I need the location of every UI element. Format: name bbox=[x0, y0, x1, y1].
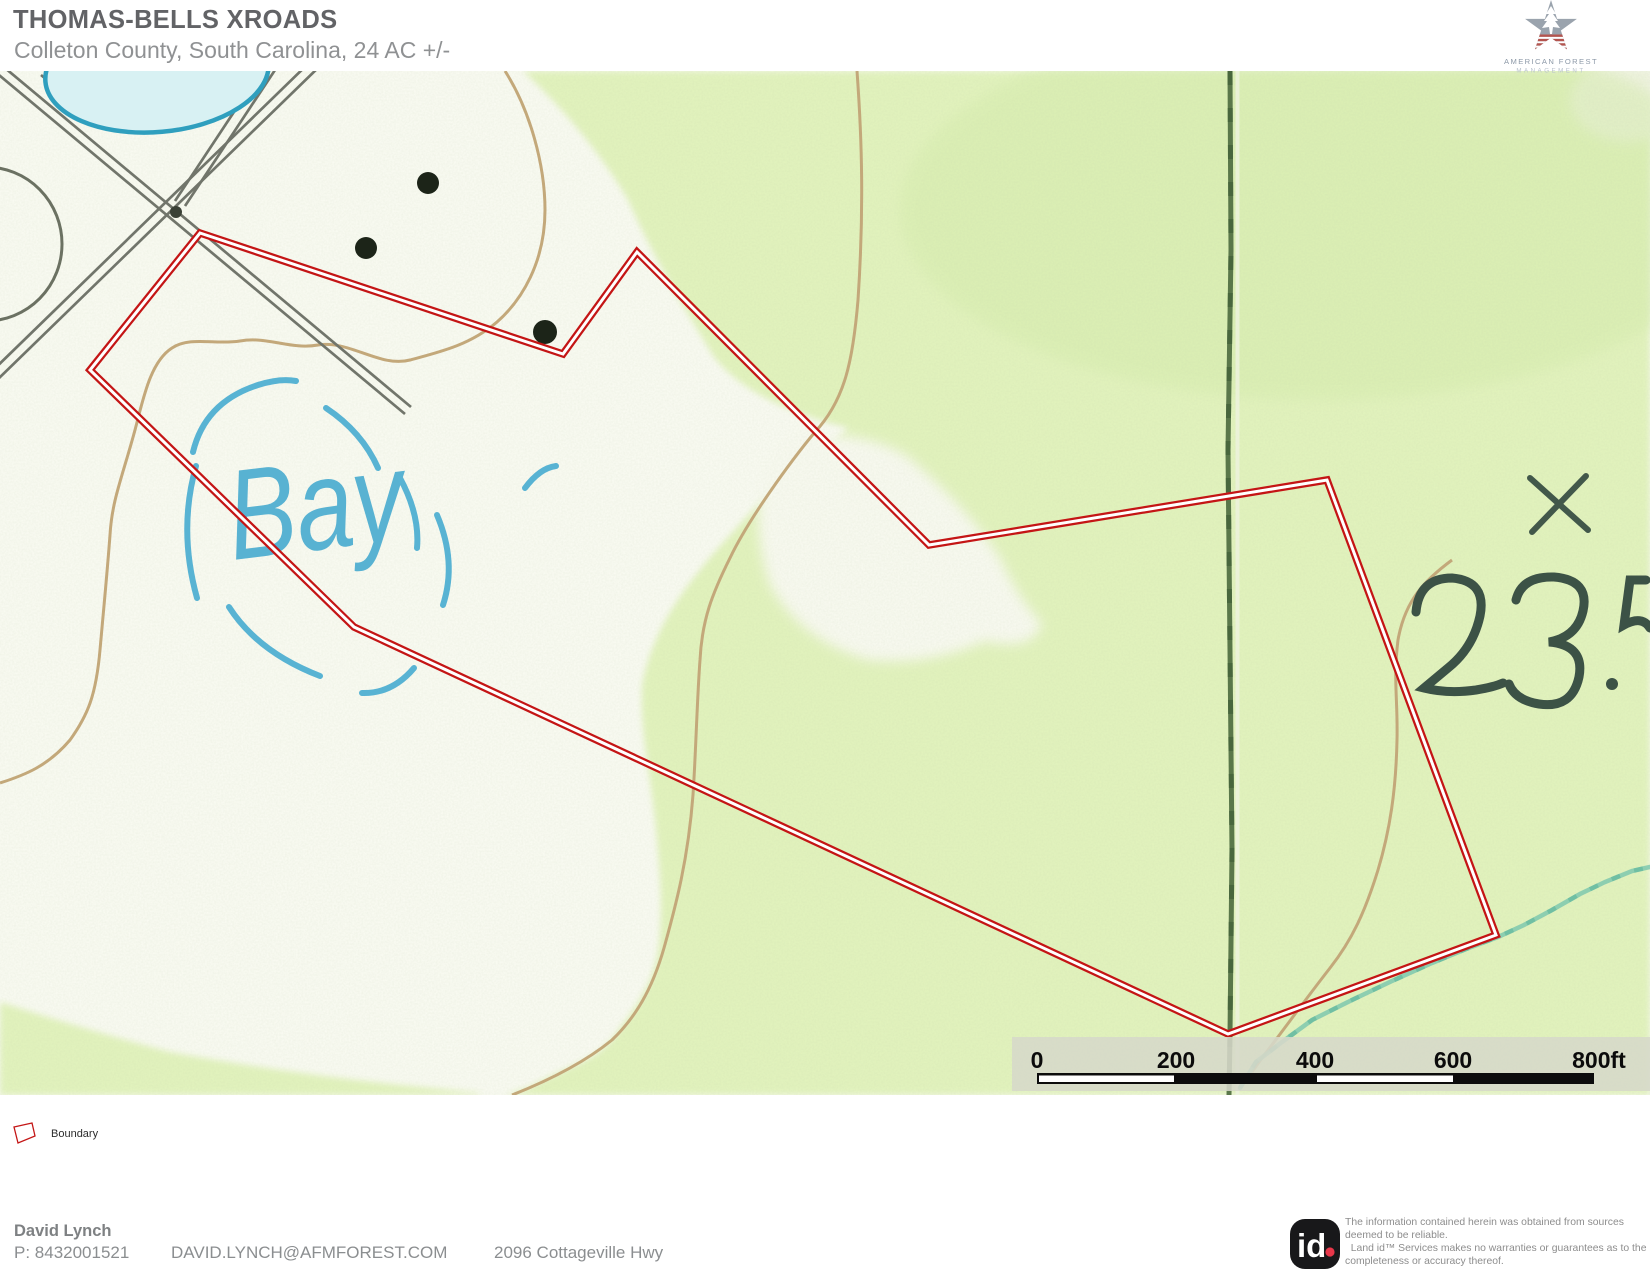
svg-text:800ft: 800ft bbox=[1572, 1047, 1626, 1073]
svg-text:deemed to be reliable.: deemed to be reliable. bbox=[1345, 1230, 1448, 1241]
svg-text:Colleton County, South Carolin: Colleton County, South Carolina, 24 AC +… bbox=[14, 37, 450, 63]
svg-text:Boundary: Boundary bbox=[51, 1128, 99, 1140]
svg-text:600: 600 bbox=[1434, 1047, 1472, 1073]
svg-text:MANAGEMENT: MANAGEMENT bbox=[1516, 68, 1585, 75]
svg-text:Bay: Bay bbox=[219, 423, 417, 588]
svg-text:David Lynch: David Lynch bbox=[14, 1222, 112, 1240]
svg-text:THOMAS-BELLS XROADS: THOMAS-BELLS XROADS bbox=[13, 6, 337, 34]
svg-text:200: 200 bbox=[1157, 1047, 1195, 1073]
svg-text:P: 8432001521: P: 8432001521 bbox=[14, 1243, 129, 1262]
svg-text:The information contained here: The information contained herein was obt… bbox=[1345, 1217, 1624, 1228]
svg-text:Land id™ Services makes no war: Land id™ Services makes no warranties or… bbox=[1345, 1243, 1647, 1254]
svg-text:AMERICAN FOREST: AMERICAN FOREST bbox=[1504, 57, 1598, 66]
svg-text:DAVID.LYNCH@AFMFOREST.COM: DAVID.LYNCH@AFMFOREST.COM bbox=[171, 1243, 447, 1262]
svg-text:2096 Cottageville Hwy: 2096 Cottageville Hwy bbox=[494, 1243, 664, 1262]
svg-text:id: id bbox=[1297, 1227, 1326, 1264]
svg-text:completeness or accuracy there: completeness or accuracy thereof. bbox=[1345, 1256, 1504, 1267]
svg-text:400: 400 bbox=[1296, 1047, 1334, 1073]
svg-text:0: 0 bbox=[1031, 1047, 1044, 1073]
